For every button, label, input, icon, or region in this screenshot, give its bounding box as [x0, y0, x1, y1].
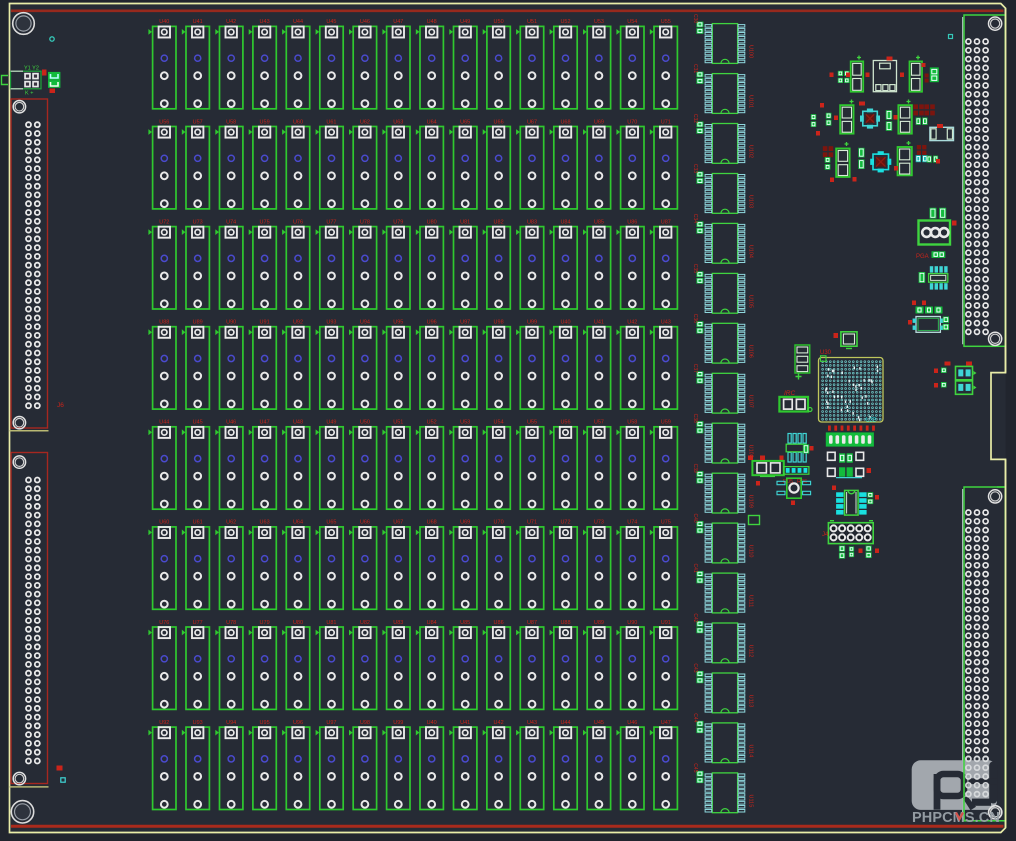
svg-text:U83: U83 — [527, 219, 537, 225]
svg-text:U82: U82 — [494, 219, 504, 225]
svg-text:U101: U101 — [748, 95, 754, 108]
svg-text:U42: U42 — [226, 19, 236, 25]
svg-text:U74: U74 — [226, 219, 236, 225]
svg-text:U46: U46 — [360, 19, 370, 25]
svg-text:U96: U96 — [427, 320, 437, 326]
svg-text:U44: U44 — [159, 420, 169, 426]
svg-text:U62: U62 — [360, 119, 370, 125]
svg-text:C44: C44 — [692, 713, 698, 722]
svg-text:U111: U111 — [748, 595, 754, 607]
svg-text:U87: U87 — [527, 620, 537, 626]
svg-text:U56: U56 — [560, 420, 570, 426]
svg-text:U94: U94 — [360, 320, 370, 326]
svg-text:U88: U88 — [560, 620, 570, 626]
svg-text:U77: U77 — [193, 620, 203, 626]
svg-text:U48: U48 — [293, 420, 303, 426]
svg-text:U97: U97 — [326, 720, 336, 726]
svg-text:U98: U98 — [494, 320, 504, 326]
svg-text:U113: U113 — [748, 695, 754, 708]
svg-text:PHPCMS.CN: PHPCMS.CN — [912, 810, 1000, 826]
svg-text:U59: U59 — [661, 420, 671, 426]
svg-text:U53: U53 — [460, 420, 470, 426]
svg-text:U58: U58 — [226, 119, 236, 125]
svg-text:U54: U54 — [494, 420, 504, 426]
svg-text:U43: U43 — [260, 19, 270, 25]
svg-text:U88: U88 — [159, 320, 169, 326]
svg-text:U41: U41 — [193, 19, 203, 25]
svg-text:U73: U73 — [594, 520, 604, 526]
svg-text:U75: U75 — [661, 520, 671, 526]
svg-text:U99: U99 — [527, 320, 537, 326]
svg-text:U58: U58 — [627, 420, 637, 426]
svg-text:U102: U102 — [748, 145, 754, 158]
svg-text:U63: U63 — [393, 119, 403, 125]
svg-text:U89: U89 — [193, 320, 203, 326]
svg-text:U60: U60 — [293, 119, 303, 125]
svg-text:U64: U64 — [427, 119, 437, 125]
svg-text:U50: U50 — [494, 19, 504, 25]
svg-text:U49: U49 — [326, 420, 336, 426]
svg-text:Y1 Y2: Y1 Y2 — [24, 66, 39, 72]
svg-text:IRC: IRC — [784, 390, 796, 397]
svg-text:U65: U65 — [460, 119, 470, 125]
svg-text:U115: U115 — [748, 795, 754, 808]
svg-text:U52: U52 — [560, 19, 570, 25]
svg-text:U80: U80 — [427, 219, 437, 225]
svg-text:U71: U71 — [661, 119, 671, 125]
svg-text:K +: K + — [25, 91, 33, 97]
svg-text:U78: U78 — [360, 219, 370, 225]
svg-text:U82: U82 — [360, 620, 370, 626]
svg-text:U45: U45 — [326, 19, 336, 25]
svg-text:U55: U55 — [527, 420, 537, 426]
svg-text:C41: C41 — [692, 564, 698, 573]
svg-text:U81: U81 — [326, 620, 336, 626]
svg-text:U70: U70 — [627, 119, 637, 125]
svg-text:U105: U105 — [748, 295, 754, 308]
svg-text:U62: U62 — [226, 520, 236, 526]
svg-text:U106: U106 — [748, 345, 754, 358]
svg-text:U87: U87 — [661, 219, 671, 225]
svg-text:U40: U40 — [560, 320, 570, 326]
svg-text:C33: C33 — [692, 164, 698, 173]
svg-text:U53: U53 — [594, 19, 604, 25]
svg-text:U74: U74 — [627, 520, 637, 526]
svg-text:L22: L22 — [866, 418, 877, 424]
svg-text:U90: U90 — [226, 320, 236, 326]
svg-text:U57: U57 — [193, 119, 203, 125]
svg-text:U92: U92 — [159, 720, 169, 726]
svg-text:U84: U84 — [560, 219, 570, 225]
svg-text:U63: U63 — [260, 520, 270, 526]
svg-text:U96: U96 — [293, 720, 303, 726]
svg-text:C32: C32 — [692, 114, 698, 123]
svg-text:U72: U72 — [159, 219, 169, 225]
svg-text:U92: U92 — [293, 320, 303, 326]
svg-text:C37: C37 — [692, 364, 698, 373]
svg-text:U90: U90 — [627, 620, 637, 626]
svg-text:U45: U45 — [594, 720, 604, 726]
svg-text:U98: U98 — [360, 720, 370, 726]
svg-text:U47: U47 — [260, 420, 270, 426]
svg-text:U64: U64 — [293, 520, 303, 526]
svg-text:C36: C36 — [692, 314, 698, 323]
svg-text:C45: C45 — [692, 763, 698, 772]
svg-text:U103: U103 — [748, 195, 754, 208]
svg-text:U46: U46 — [627, 720, 637, 726]
svg-text:U100: U100 — [748, 45, 754, 58]
svg-text:U69: U69 — [594, 119, 604, 125]
svg-text:U94: U94 — [226, 720, 236, 726]
svg-text:U84: U84 — [427, 620, 437, 626]
svg-text:U78: U78 — [226, 620, 236, 626]
svg-text:U61: U61 — [193, 520, 203, 526]
svg-text:U55: U55 — [661, 19, 671, 25]
svg-text:U91: U91 — [661, 620, 671, 626]
svg-text:U69: U69 — [460, 520, 470, 526]
svg-text:U107: U107 — [748, 395, 754, 408]
svg-text:C35: C35 — [692, 264, 698, 273]
svg-text:PGA: PGA — [916, 254, 929, 260]
svg-text:U59: U59 — [260, 119, 270, 125]
svg-text:U85: U85 — [460, 620, 470, 626]
svg-text:U67: U67 — [527, 119, 537, 125]
svg-text:U42: U42 — [494, 720, 504, 726]
svg-text:U86: U86 — [494, 620, 504, 626]
svg-text:U60: U60 — [159, 520, 169, 526]
svg-text:C38: C38 — [692, 414, 698, 423]
svg-text:U68: U68 — [427, 520, 437, 526]
svg-text:R06: R06 — [797, 479, 807, 485]
svg-text:U93: U93 — [326, 320, 336, 326]
svg-text:U71: U71 — [527, 520, 537, 526]
svg-text:U97: U97 — [460, 320, 470, 326]
svg-text:U77: U77 — [326, 219, 336, 225]
svg-text:U66: U66 — [360, 520, 370, 526]
svg-text:U99: U99 — [393, 720, 403, 726]
svg-text:U76: U76 — [159, 620, 169, 626]
svg-text:U65: U65 — [326, 520, 336, 526]
svg-text:U80: U80 — [293, 620, 303, 626]
svg-text:J6: J6 — [57, 402, 64, 409]
svg-text:C39: C39 — [692, 464, 698, 473]
svg-text:C40: C40 — [692, 514, 698, 523]
svg-text:U49: U49 — [460, 19, 470, 25]
svg-text:U48: U48 — [427, 19, 437, 25]
svg-text:U67: U67 — [393, 520, 403, 526]
svg-text:U45: U45 — [193, 420, 203, 426]
svg-text:U40: U40 — [427, 720, 437, 726]
svg-text:U57: U57 — [594, 420, 604, 426]
svg-text:U104: U104 — [748, 245, 754, 258]
svg-text:U91: U91 — [260, 320, 270, 326]
svg-text:U50: U50 — [360, 420, 370, 426]
svg-text:U43: U43 — [527, 720, 537, 726]
svg-text:C43: C43 — [692, 663, 698, 672]
svg-text:U68: U68 — [560, 119, 570, 125]
svg-text:U83: U83 — [393, 620, 403, 626]
svg-text:U66: U66 — [494, 119, 504, 125]
svg-text:U109: U109 — [748, 495, 754, 508]
svg-text:U41: U41 — [594, 320, 604, 326]
svg-text:U61: U61 — [326, 119, 336, 125]
svg-text:U79: U79 — [260, 620, 270, 626]
svg-text:U40: U40 — [159, 19, 169, 25]
svg-text:U44: U44 — [293, 19, 303, 25]
svg-text:U110: U110 — [748, 545, 754, 558]
svg-text:U47: U47 — [661, 720, 671, 726]
svg-text:U51: U51 — [393, 420, 403, 426]
svg-text:U76: U76 — [293, 219, 303, 225]
svg-text:U89: U89 — [594, 620, 604, 626]
svg-text:U75: U75 — [260, 219, 270, 225]
svg-text:U46: U46 — [226, 420, 236, 426]
svg-text:U41: U41 — [460, 720, 470, 726]
svg-text:U51: U51 — [527, 19, 537, 25]
svg-text:U85: U85 — [594, 219, 604, 225]
svg-text:U43: U43 — [661, 320, 671, 326]
svg-text:U93: U93 — [193, 720, 203, 726]
svg-text:U81: U81 — [460, 219, 470, 225]
svg-text:U86: U86 — [627, 219, 637, 225]
svg-text:C31: C31 — [692, 64, 698, 73]
svg-text:U70: U70 — [494, 520, 504, 526]
svg-text:U72: U72 — [560, 520, 570, 526]
svg-text:U95: U95 — [393, 320, 403, 326]
svg-text:U54: U54 — [627, 19, 637, 25]
svg-text:U56: U56 — [159, 119, 169, 125]
svg-text:U114: U114 — [748, 745, 754, 758]
svg-text:U30: U30 — [820, 350, 832, 356]
svg-text:C30: C30 — [692, 14, 698, 23]
svg-text:U52: U52 — [427, 420, 437, 426]
svg-text:U79: U79 — [393, 219, 403, 225]
svg-text:C42: C42 — [692, 613, 698, 622]
svg-text:U47: U47 — [393, 19, 403, 25]
svg-text:C34: C34 — [692, 214, 698, 223]
svg-text:U73: U73 — [193, 219, 203, 225]
svg-text:U42: U42 — [627, 320, 637, 326]
svg-text:U112: U112 — [748, 645, 754, 658]
svg-text:J4: J4 — [822, 532, 829, 538]
svg-text:U95: U95 — [260, 720, 270, 726]
svg-text:U44: U44 — [560, 720, 570, 726]
